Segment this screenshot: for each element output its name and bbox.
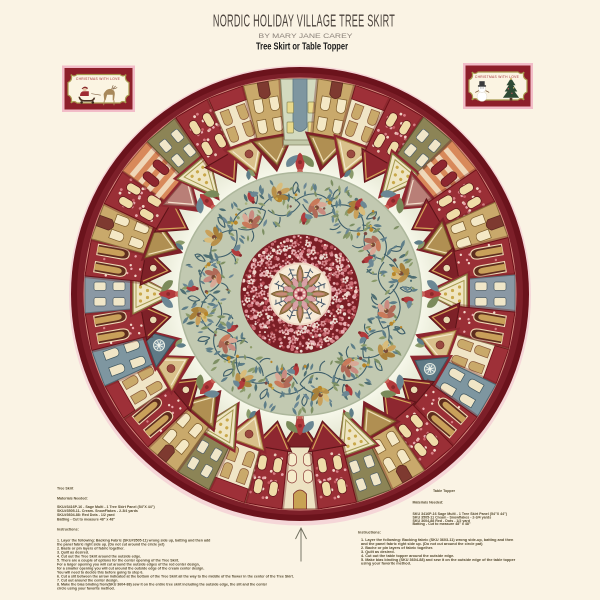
svg-text:Materials Needed:: Materials Needed: [413, 501, 444, 505]
svg-text:NORDIC HOLIDAY VILLAGE TREE SK: NORDIC HOLIDAY VILLAGE TREE SKIRT [213, 10, 395, 30]
svg-text:Tree Skirt: Tree Skirt [57, 487, 74, 491]
svg-text:Batting - Cut to measure 48" x: Batting - Cut to measure 48" x 48" [57, 517, 115, 521]
svg-text:Materials Needed:: Materials Needed: [57, 497, 88, 501]
svg-text:CHRISTMAS WITH LOVE: CHRISTMAS WITH LOVE [475, 75, 520, 79]
svg-text:using your favorite method.: using your favorite method. [361, 562, 411, 566]
svg-text:CHRISTMAS WITH LOVE: CHRISTMAS WITH LOVE [76, 77, 121, 81]
svg-text:BY MARY JANE CAREY: BY MARY JANE CAREY [259, 33, 354, 40]
svg-text:Tree Skirt or Table Topper: Tree Skirt or Table Topper [256, 42, 348, 53]
svg-text:Instructions:: Instructions: [57, 528, 79, 532]
svg-text:Table Topper: Table Topper [433, 489, 456, 493]
svg-text:Instructions:: Instructions: [358, 531, 381, 535]
svg-text:circle using your favorite met: circle using your favorite method. [57, 587, 115, 591]
svg-text:Batting - Cut to measure 48" x: Batting - Cut to measure 48" x 48" [413, 522, 471, 526]
